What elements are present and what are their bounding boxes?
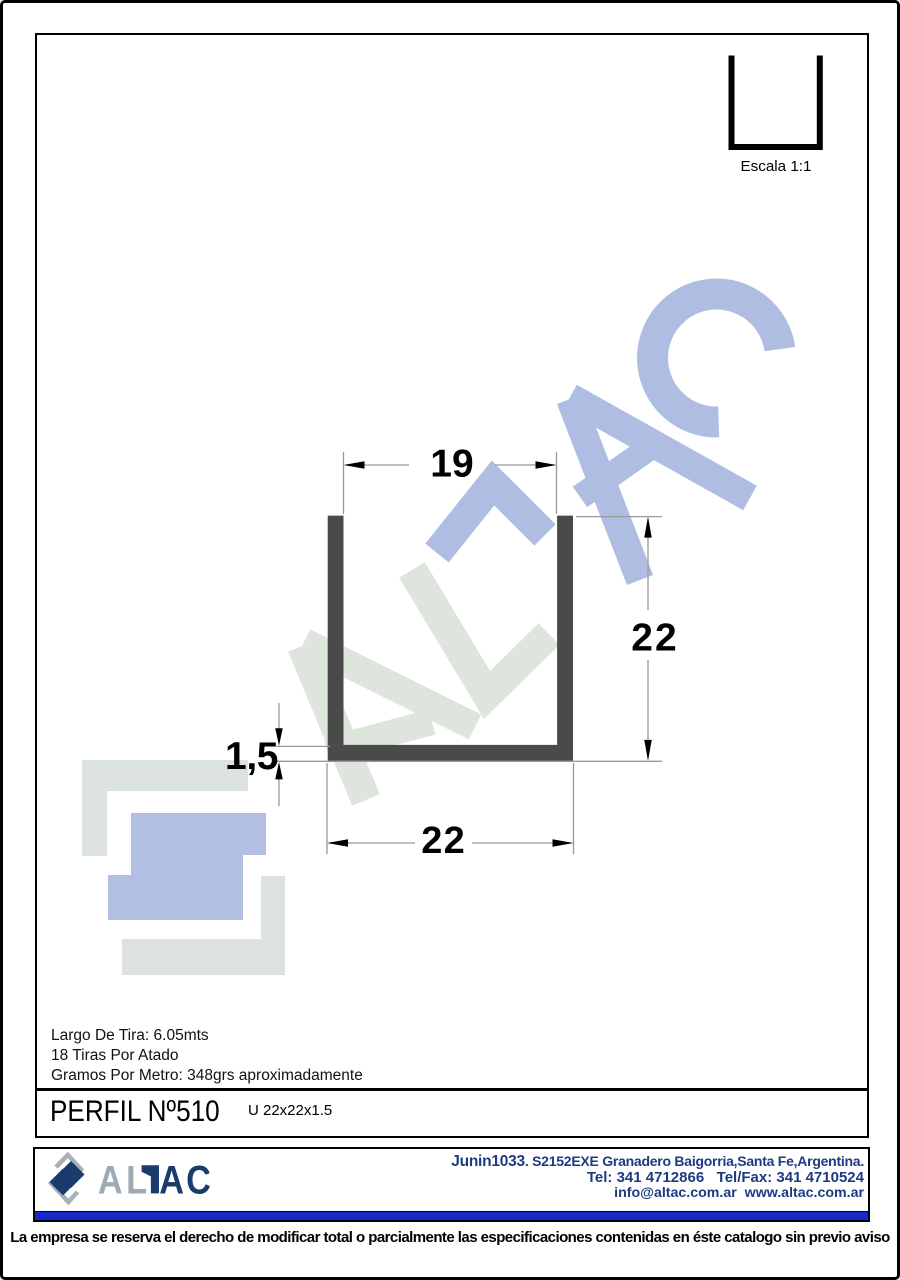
svg-text:C: C	[186, 1158, 211, 1198]
svg-text:L: L	[126, 1158, 147, 1198]
svg-text:A: A	[98, 1158, 123, 1198]
svg-text:A: A	[159, 1158, 184, 1198]
